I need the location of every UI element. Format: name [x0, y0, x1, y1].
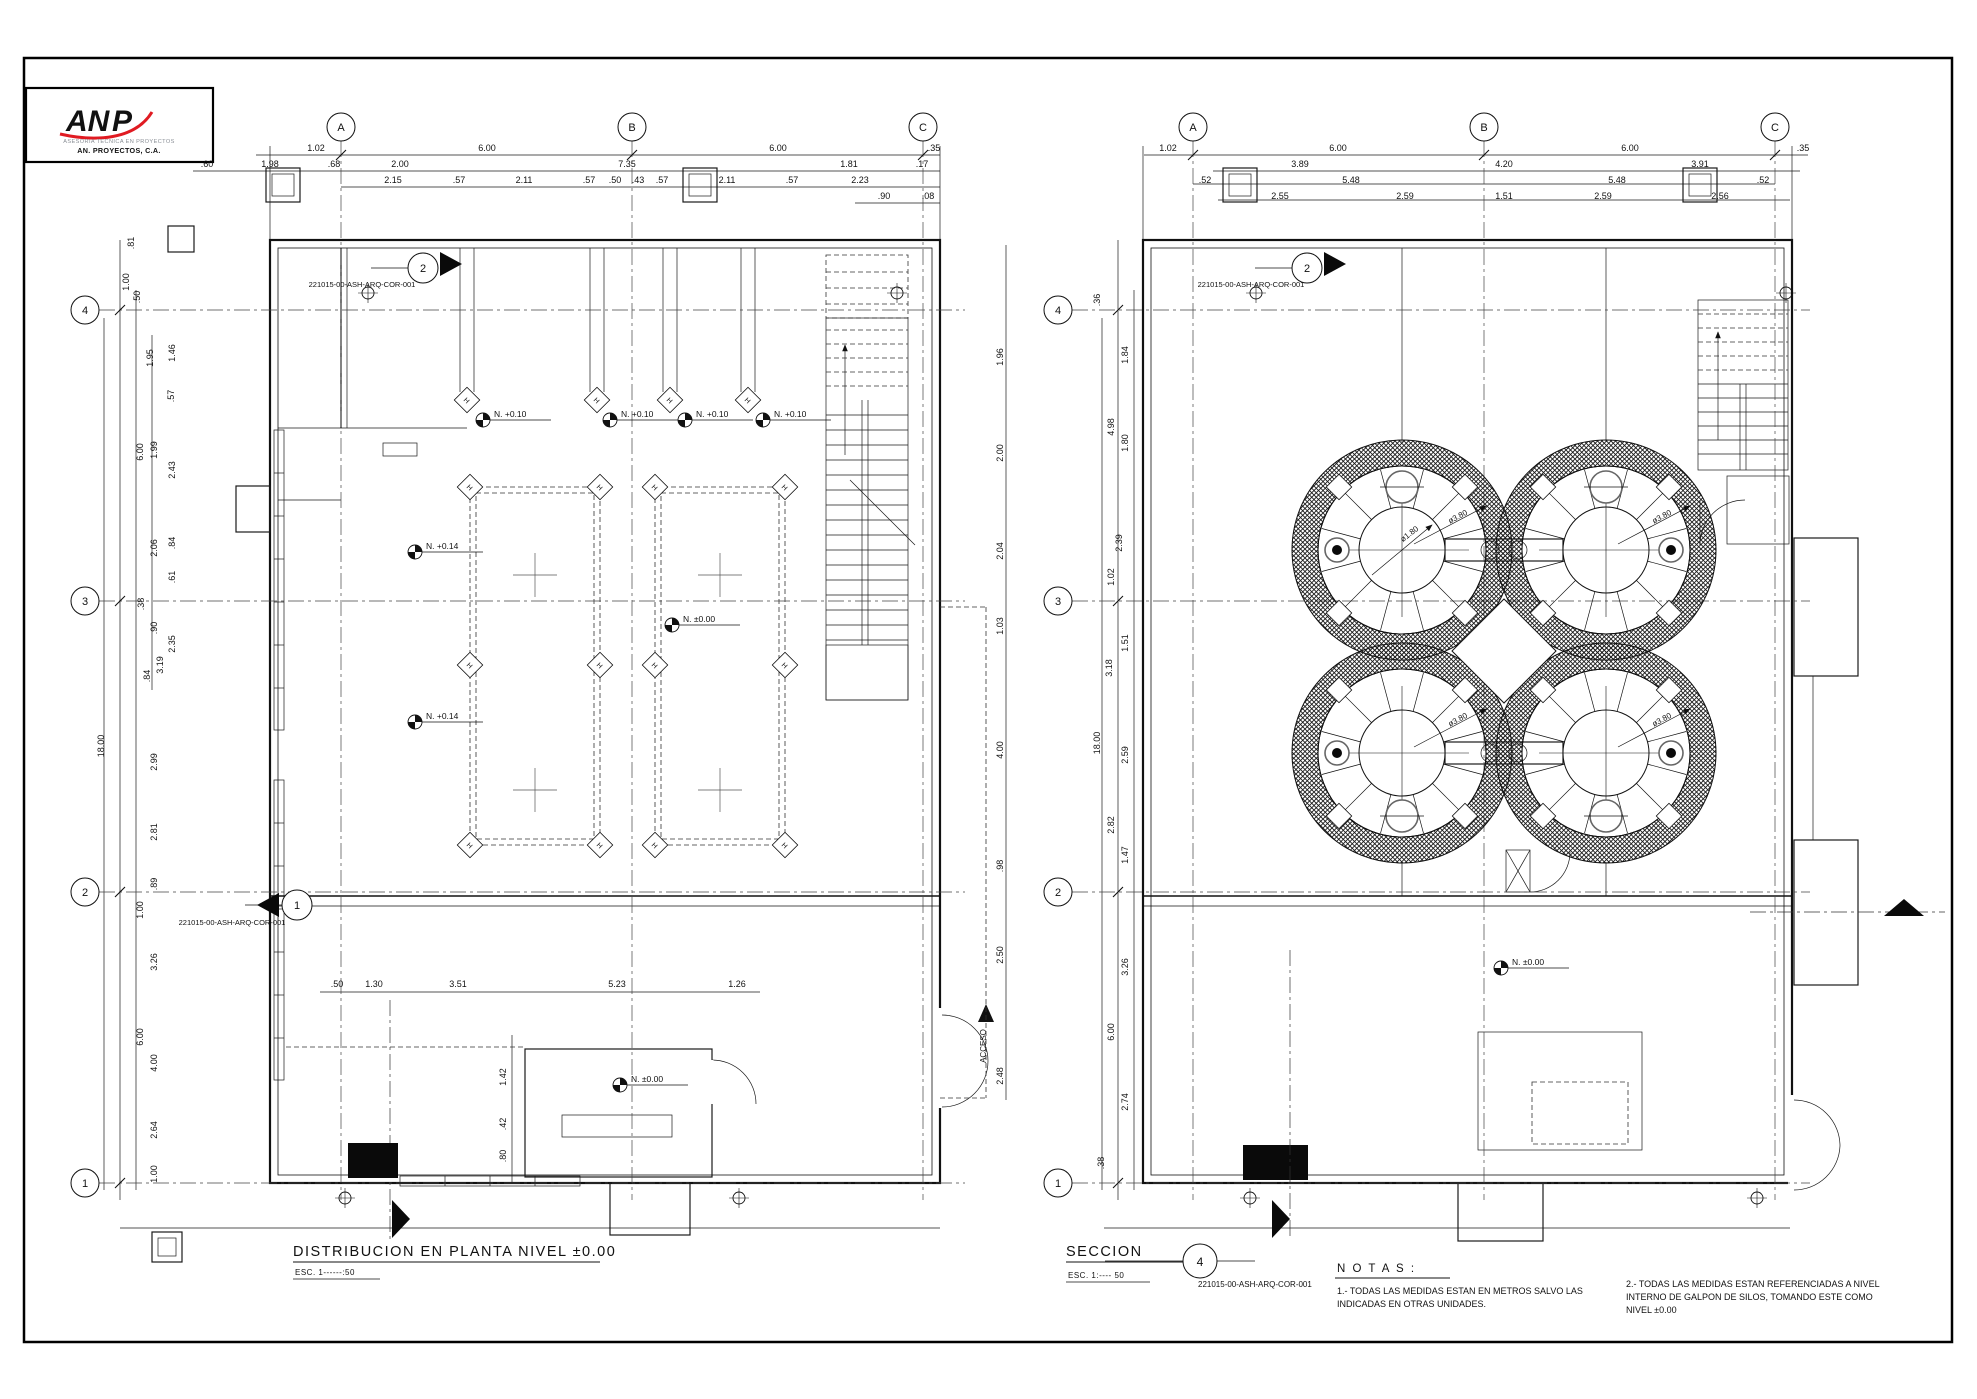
dim-label: .57 [583, 175, 596, 185]
dim-label: .50 [609, 175, 622, 185]
dim-label: 1.30 [365, 979, 383, 989]
grid-bubble-label: 3 [82, 596, 88, 608]
dim-label: .57 [453, 175, 466, 185]
dim-label: 1.00 [121, 273, 131, 291]
blueprint-svg: AN P ASESORIA TECNICA EN PROYECTOS AN. P… [0, 0, 1977, 1399]
grid-bubble-label: 2 [82, 887, 88, 899]
dim-label: .35 [928, 143, 941, 153]
dim-label: 3.91 [1691, 159, 1709, 169]
dim-label: 1.00 [149, 1165, 159, 1183]
dim-label: 4.00 [149, 1054, 159, 1072]
section-ref: 221015-00-ASH-ARQ-COR-001 [1198, 1280, 1312, 1289]
dim-label: 221015-00-ASH-ARQ-COR-001 [309, 280, 416, 289]
dim-label: .36 [1092, 294, 1102, 307]
dim-label: 2.06 [149, 539, 159, 557]
dim-label: .57 [656, 175, 669, 185]
level-label: N. +0.10 [696, 409, 729, 419]
note-1-line-2: INDICADAS EN OTRAS UNIDADES. [1337, 1299, 1486, 1309]
dim-label: 2.81 [149, 823, 159, 841]
detail-number: 4 [1197, 1255, 1204, 1269]
section-title: SECCION [1066, 1244, 1143, 1260]
dim-label: .38 [136, 598, 146, 611]
dim-label: 3.26 [1120, 958, 1130, 976]
note-2-line-3: NIVEL ±0.00 [1626, 1305, 1677, 1315]
dim-label: 2.04 [995, 542, 1005, 560]
dim-label: 1.03 [995, 617, 1005, 635]
level-label: N. +0.14 [426, 711, 459, 721]
left-plan-title: DISTRIBUCION EN PLANTA NIVEL ±0.00 [293, 1244, 616, 1260]
dim-label: 2.99 [149, 753, 159, 771]
dim-label: 1.26 [728, 979, 746, 989]
dim-label: 2.00 [391, 159, 409, 169]
sheet-border [24, 58, 1952, 1342]
grid-bubble-label: 4 [1055, 305, 1061, 317]
level-label: N. +0.14 [426, 541, 459, 551]
dim-label: .89 [149, 878, 159, 891]
dim-label: .60 [201, 159, 214, 169]
dim-label: 2.64 [149, 1121, 159, 1139]
note-2-line-2: INTERNO DE GALPON DE SILOS, TOMANDO ESTE… [1626, 1292, 1873, 1302]
dim-label: 1.96 [995, 348, 1005, 366]
grid-bubble-label: C [1771, 122, 1779, 134]
dim-label: .38 [1096, 1157, 1106, 1170]
left-plan-scale: ESC. 1------:50 [295, 1268, 355, 1277]
dim-label: 1.42 [498, 1068, 508, 1086]
dim-label: 6.00 [478, 143, 496, 153]
grid-bubble-label: 4 [82, 305, 88, 317]
grid-bubble-label: B [1480, 122, 1487, 134]
level-label: N. ±0.00 [683, 614, 715, 624]
dim-label: 6.00 [1329, 143, 1347, 153]
section-marker-number: 2 [1304, 263, 1310, 275]
dim-label: 5.23 [608, 979, 626, 989]
dim-label: 2.55 [1271, 191, 1289, 201]
dim-label: 1.81 [840, 159, 858, 169]
dim-label: 1.46 [167, 344, 177, 362]
dim-label: .50 [132, 291, 142, 304]
notes-heading: N O T A S : [1337, 1263, 1416, 1275]
dim-label: 1.80 [1120, 434, 1130, 452]
dim-label: 6.00 [1621, 143, 1639, 153]
grid-bubble-label: A [1189, 122, 1197, 134]
dim-label: 2.39 [1114, 534, 1124, 552]
grid-bubble-label: 1 [82, 1178, 88, 1190]
dim-label: 1.47 [1120, 846, 1130, 864]
dim-label: 6.00 [135, 443, 145, 461]
dim-label: 2.00 [995, 444, 1005, 462]
dim-label: 2.15 [384, 175, 402, 185]
dim-label: .57 [166, 390, 176, 403]
dim-label: 2.48 [995, 1067, 1005, 1085]
dim-label: 4.00 [995, 741, 1005, 759]
note-1-line-1: 1.- TODAS LAS MEDIDAS ESTAN EN METROS SA… [1337, 1286, 1583, 1296]
dim-label: .08 [922, 191, 935, 201]
dim-label: 1.02 [1159, 143, 1177, 153]
dim-label: 2.59 [1396, 191, 1414, 201]
dim-label: 1.02 [1106, 568, 1116, 586]
dim-label: 1.51 [1495, 191, 1513, 201]
dim-label: 2.74 [1120, 1093, 1130, 1111]
logo-an: AN [65, 105, 111, 138]
grid-bubble-label: A [337, 122, 345, 134]
dim-label: 4.98 [1106, 418, 1116, 436]
dim-label: 2.43 [167, 461, 177, 479]
dim-label: 5.48 [1342, 175, 1360, 185]
equipment-block [348, 1143, 398, 1178]
grid-bubble-label: B [628, 122, 635, 134]
dim-label: 1.51 [1120, 634, 1130, 652]
dim-label: .68 [328, 159, 341, 169]
dim-label: 2.50 [995, 946, 1005, 964]
dim-label: 3.26 [149, 953, 159, 971]
dim-label: .50 [331, 979, 344, 989]
dim-label: 2.56 [1711, 191, 1729, 201]
logo-tagline: ASESORIA TECNICA EN PROYECTOS [63, 139, 175, 145]
section-scale: ESC. 1:---- 50 [1068, 1271, 1124, 1280]
equipment-block-2 [1243, 1145, 1308, 1180]
dim-label: 6.00 [769, 143, 787, 153]
note-2-line-1: 2.- TODAS LAS MEDIDAS ESTAN REFERENCIADA… [1626, 1279, 1880, 1289]
dim-label: .84 [142, 670, 152, 683]
dim-label: 6.00 [1106, 1023, 1116, 1041]
dim-label: 2.11 [719, 175, 736, 185]
dim-label: .90 [149, 622, 159, 635]
dim-label: 3.89 [1291, 159, 1309, 169]
level-label: N. +0.10 [774, 409, 807, 419]
dim-label: 221015-00-ASH-ARQ-COR-001 [179, 918, 286, 927]
dim-label: 2.82 [1106, 816, 1116, 834]
dim-label: .80 [498, 1150, 508, 1163]
dim-label: 5.48 [1608, 175, 1626, 185]
dim-label: 18.00 [96, 735, 106, 758]
dim-label: 1.99 [149, 441, 159, 459]
grid-bubble-label: 2 [1055, 887, 1061, 899]
dim-label: 2.11 [516, 175, 533, 185]
dim-label: 1.00 [135, 901, 145, 919]
dim-label: .90 [878, 191, 891, 201]
dim-label: .35 [1797, 143, 1810, 153]
dim-label: .61 [167, 571, 177, 584]
dim-label: 4.20 [1495, 159, 1513, 169]
level-label: N. +0.10 [621, 409, 654, 419]
dim-label: .81 [126, 237, 136, 250]
dim-label: 3.18 [1104, 659, 1114, 677]
dim-label: .42 [498, 1118, 508, 1131]
drawing-sheet: AN P ASESORIA TECNICA EN PROYECTOS AN. P… [0, 0, 1977, 1399]
grid-bubble-label: C [919, 122, 927, 134]
dim-label: 6.00 [135, 1028, 145, 1046]
dim-label: 1.84 [1120, 346, 1130, 364]
dim-label: 2.35 [167, 635, 177, 653]
dim-label: .57 [786, 175, 799, 185]
dim-label: .17 [916, 159, 929, 169]
dim-label: 3.19 [155, 656, 165, 674]
dim-label: ACCESO [979, 1029, 988, 1063]
level-label: N. ±0.00 [1512, 957, 1544, 967]
logo-company: AN. PROYECTOS, C.A. [77, 146, 160, 155]
grid-bubble-label: 3 [1055, 596, 1061, 608]
section-marker-number: 1 [294, 900, 300, 912]
dim-label: 221015-00-ASH-ARQ-COR-001 [1198, 280, 1305, 289]
dim-label: 2.59 [1594, 191, 1612, 201]
section-marker-number: 2 [420, 263, 426, 275]
dim-label: 2.59 [1120, 746, 1130, 764]
dim-label: 2.23 [851, 175, 869, 185]
dim-label: .84 [167, 537, 177, 550]
dim-label: 3.51 [449, 979, 467, 989]
dim-label: .43 [632, 175, 645, 185]
dim-label: 7.35 [618, 159, 636, 169]
grid-bubble-label: 1 [1055, 1178, 1061, 1190]
dim-label: 18.00 [1092, 732, 1102, 755]
logo-block: AN P ASESORIA TECNICA EN PROYECTOS AN. P… [26, 88, 213, 162]
dim-label: 1.98 [261, 159, 279, 169]
dim-label: 1.02 [307, 143, 325, 153]
level-label: N. ±0.00 [631, 1074, 663, 1084]
dim-label: .98 [995, 860, 1005, 873]
dim-label: 1.95 [145, 349, 155, 367]
dim-label: .52 [1757, 175, 1770, 185]
dim-label: .52 [1199, 175, 1212, 185]
level-label: N. +0.10 [494, 409, 527, 419]
